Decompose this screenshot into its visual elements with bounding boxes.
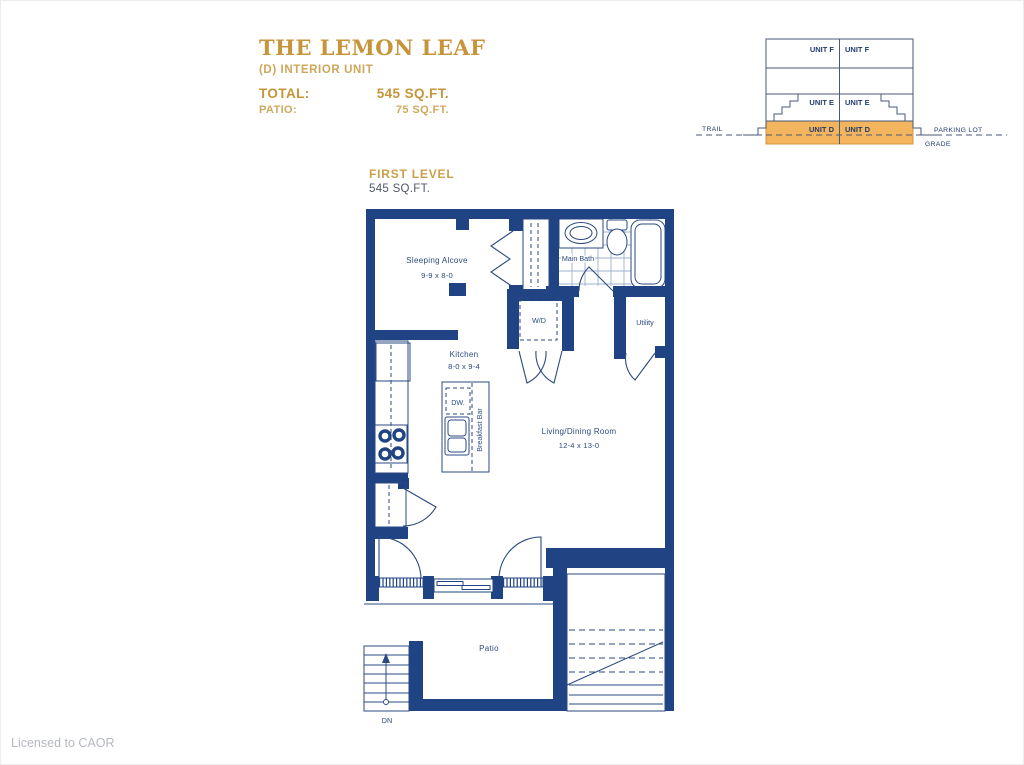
- dashed-details: [389, 223, 557, 525]
- toilet-bowl: [607, 229, 627, 255]
- stairwell-upper-treads-dashed: [569, 630, 663, 672]
- trail-label: TRAIL: [702, 126, 723, 133]
- utility-label: Utility: [636, 318, 654, 327]
- grade-label: GRADE: [925, 141, 951, 148]
- living-dining-dims: 12-4 x 13-0: [559, 441, 600, 450]
- unit-e-left-label: UNIT E: [809, 98, 834, 107]
- main-bath-label: Main Bath: [562, 254, 594, 263]
- stairwell-break-line: [567, 642, 663, 685]
- rear-wall-glazing: [379, 578, 543, 592]
- dn-label: DN: [382, 716, 392, 725]
- unit-d-right-label: UNIT D: [845, 125, 871, 134]
- island-sink-basin-1: [448, 420, 466, 436]
- wd-door-right: [536, 351, 562, 383]
- stove-burners: [380, 430, 404, 459]
- parking-lot-label: PARKING LOT: [934, 127, 983, 134]
- patio-door-left: [379, 537, 421, 579]
- unit-e-right-label: UNIT E: [845, 98, 870, 107]
- patio-door-right: [499, 537, 541, 579]
- bifold-closet-doors: [491, 231, 513, 287]
- fridge: [376, 343, 410, 381]
- kitchen-dims: 8-0 x 9-4: [448, 362, 480, 371]
- dishwasher-label: DW.: [451, 398, 465, 407]
- stairwell-lower-treads: [569, 685, 663, 704]
- breakfast-bar-label: Breakfast Bar: [475, 408, 484, 452]
- living-dining-label: Living/Dining Room: [542, 427, 617, 436]
- license-note: Licensed to CAOR: [11, 736, 115, 750]
- stairwell-right: [567, 574, 665, 711]
- unit-d-left-label: UNIT D: [809, 125, 835, 134]
- stairs-down-left: [364, 646, 409, 711]
- stairwell-outline: [567, 574, 665, 711]
- entry-closet-door: [403, 488, 436, 526]
- stairs-arrow-origin: [384, 700, 389, 705]
- alcove-closet-rod: [531, 223, 538, 287]
- building-cross-section: UNIT F UNIT F UNIT E UNIT E UNIT D UNIT …: [696, 39, 1007, 148]
- bathtub-inner: [635, 224, 661, 284]
- casework-outlines: [364, 219, 553, 604]
- patio-label: Patio: [479, 644, 499, 653]
- sink-basin-inner: [570, 227, 592, 240]
- wd-label: W/D: [532, 316, 546, 325]
- utility-door: [625, 353, 655, 380]
- sleeping-alcove-label: Sleeping Alcove: [406, 256, 468, 265]
- sleeping-alcove-dims: 9-9 x 8-0: [421, 271, 453, 280]
- floor-plan-drawing: UNIT F UNIT F UNIT E UNIT E UNIT D UNIT …: [1, 1, 1024, 765]
- alcove-closet: [523, 219, 549, 291]
- unit-f-left-label: UNIT F: [810, 45, 835, 54]
- island-sink-basin-2: [448, 438, 466, 452]
- door-swings: [379, 231, 655, 579]
- wd-door-left: [519, 351, 546, 383]
- entry-closet: [375, 483, 406, 527]
- kitchen-label: Kitchen: [450, 350, 479, 359]
- floorplan-page: THE LEMON LEAF (D) INTERIOR UNIT TOTAL: …: [0, 0, 1024, 765]
- unit-f-right-label: UNIT F: [845, 45, 870, 54]
